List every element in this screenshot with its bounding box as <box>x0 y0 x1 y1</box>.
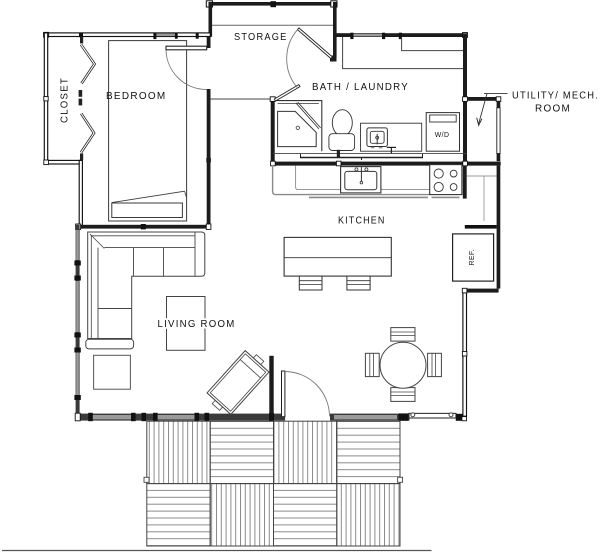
svg-text:KITCHEN: KITCHEN <box>338 216 386 227</box>
svg-text:ROOM: ROOM <box>535 104 571 115</box>
svg-text:STORAGE: STORAGE <box>234 32 288 43</box>
svg-text:REF.: REF. <box>467 249 476 266</box>
svg-text:BATH / LAUNDRY: BATH / LAUNDRY <box>312 82 409 93</box>
svg-text:W/D: W/D <box>435 130 450 139</box>
svg-text:BEDROOM: BEDROOM <box>106 91 167 102</box>
svg-text:CLOSET: CLOSET <box>60 77 71 123</box>
svg-text:LIVING ROOM: LIVING ROOM <box>158 319 236 330</box>
svg-text:UTILITY/ MECH.: UTILITY/ MECH. <box>512 91 599 102</box>
